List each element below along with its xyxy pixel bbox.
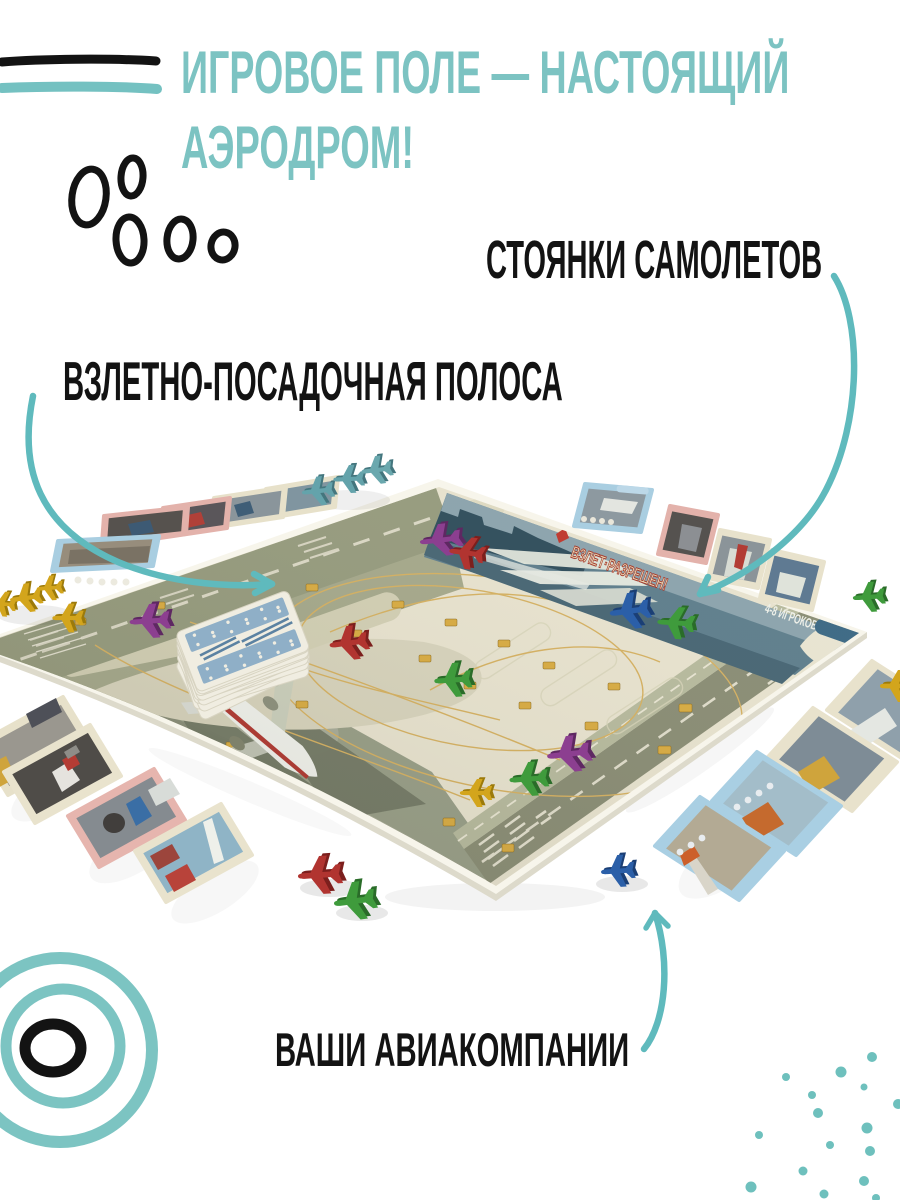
svg-text:ВЗЛЕТНО-ПОСАДОЧНАЯ ПОЛОСА: ВЗЛЕТНО-ПОСАДОЧНАЯ ПОЛОСА [63, 351, 563, 412]
svg-text:АЭРОДРОМ!: АЭРОДРОМ! [181, 114, 414, 181]
svg-text:ИГРОВОЕ ПОЛЕ — НАСТОЯЩИЙ: ИГРОВОЕ ПОЛЕ — НАСТОЯЩИЙ [181, 38, 789, 106]
svg-text:СТОЯНКИ САМОЛЕТОВ: СТОЯНКИ САМОЛЕТОВ [486, 231, 822, 291]
svg-text:ВАШИ АВИАКОМПАНИИ: ВАШИ АВИАКОМПАНИИ [275, 1024, 629, 1077]
